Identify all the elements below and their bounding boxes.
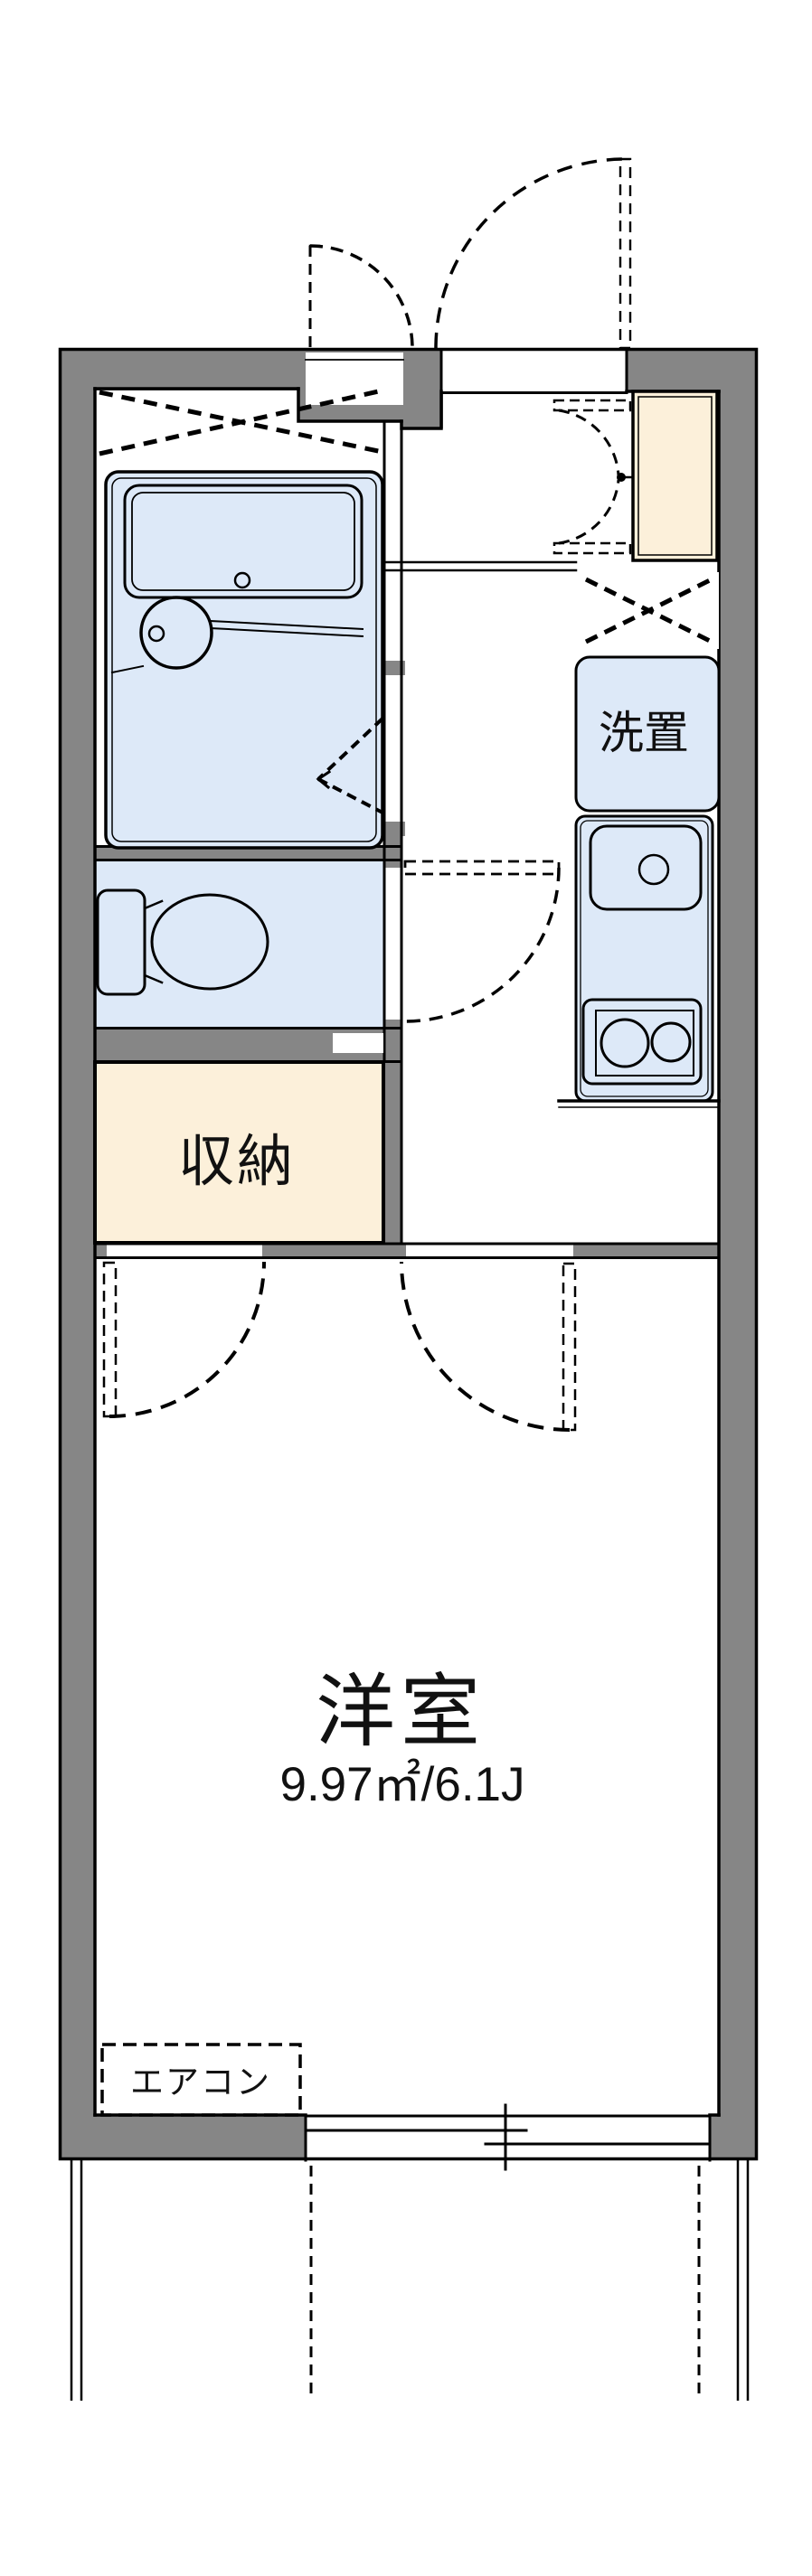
bottom-wall-right xyxy=(710,2115,758,2160)
toilet-door-leaf xyxy=(405,861,559,874)
room-wall-right xyxy=(573,1245,719,1257)
toilet-floor xyxy=(95,860,383,1028)
room-name-label: 洋室 xyxy=(316,1667,486,1756)
cabinet-door-arc-top xyxy=(559,410,618,475)
shoe-cabinet xyxy=(633,391,717,560)
entry-door-swing-arc xyxy=(436,159,625,348)
bottom-wall-left xyxy=(59,2115,306,2160)
room-wall-stub-left xyxy=(95,1245,107,1257)
balcony-railing-bar xyxy=(57,2401,758,2421)
toilet-door-swing-arc xyxy=(405,868,559,1021)
washer-label: 洗置 xyxy=(599,708,689,758)
bathroom xyxy=(99,390,382,848)
toilet-threshold xyxy=(333,1033,383,1053)
wash-basin xyxy=(141,597,212,668)
room-area-label: 9.97㎡/6.1J xyxy=(279,1758,524,1811)
entry-pillar xyxy=(401,348,443,428)
cabinet-door-leaf-top xyxy=(554,400,630,410)
room-door-swing-arc xyxy=(401,1262,570,1430)
kitchen: 洗置 xyxy=(554,391,719,1107)
room-door-leaf xyxy=(563,1264,575,1430)
entry-doors xyxy=(310,159,630,348)
right-wall xyxy=(719,348,758,2160)
aircon-label: エアコン xyxy=(130,2064,271,2101)
cabinet-door-arc-bottom xyxy=(559,480,618,543)
closet-door-swing-arc xyxy=(109,1262,264,1416)
storage-label: 収納 xyxy=(178,1131,296,1193)
bath-toilet-divider xyxy=(95,848,401,859)
entry-door-opening xyxy=(441,351,627,391)
left-wall xyxy=(59,348,95,2160)
cabinet-door-leaf-bottom xyxy=(554,543,630,553)
floor-plan-drawing: 洗置 収納 洋室 9.97㎡/6.1J エアコン xyxy=(0,0,812,2576)
entry-door-leaf xyxy=(620,159,630,348)
room-wall-mid xyxy=(262,1245,406,1257)
alcove-door-swing-arc xyxy=(310,246,412,348)
partition-block-3 xyxy=(386,1062,401,1243)
closet-door-leaf xyxy=(104,1263,116,1416)
western-room: 洋室 9.97㎡/6.1J エアコン xyxy=(102,1262,575,2115)
floor-plan: 洗置 収納 洋室 9.97㎡/6.1J エアコン xyxy=(0,0,812,2576)
